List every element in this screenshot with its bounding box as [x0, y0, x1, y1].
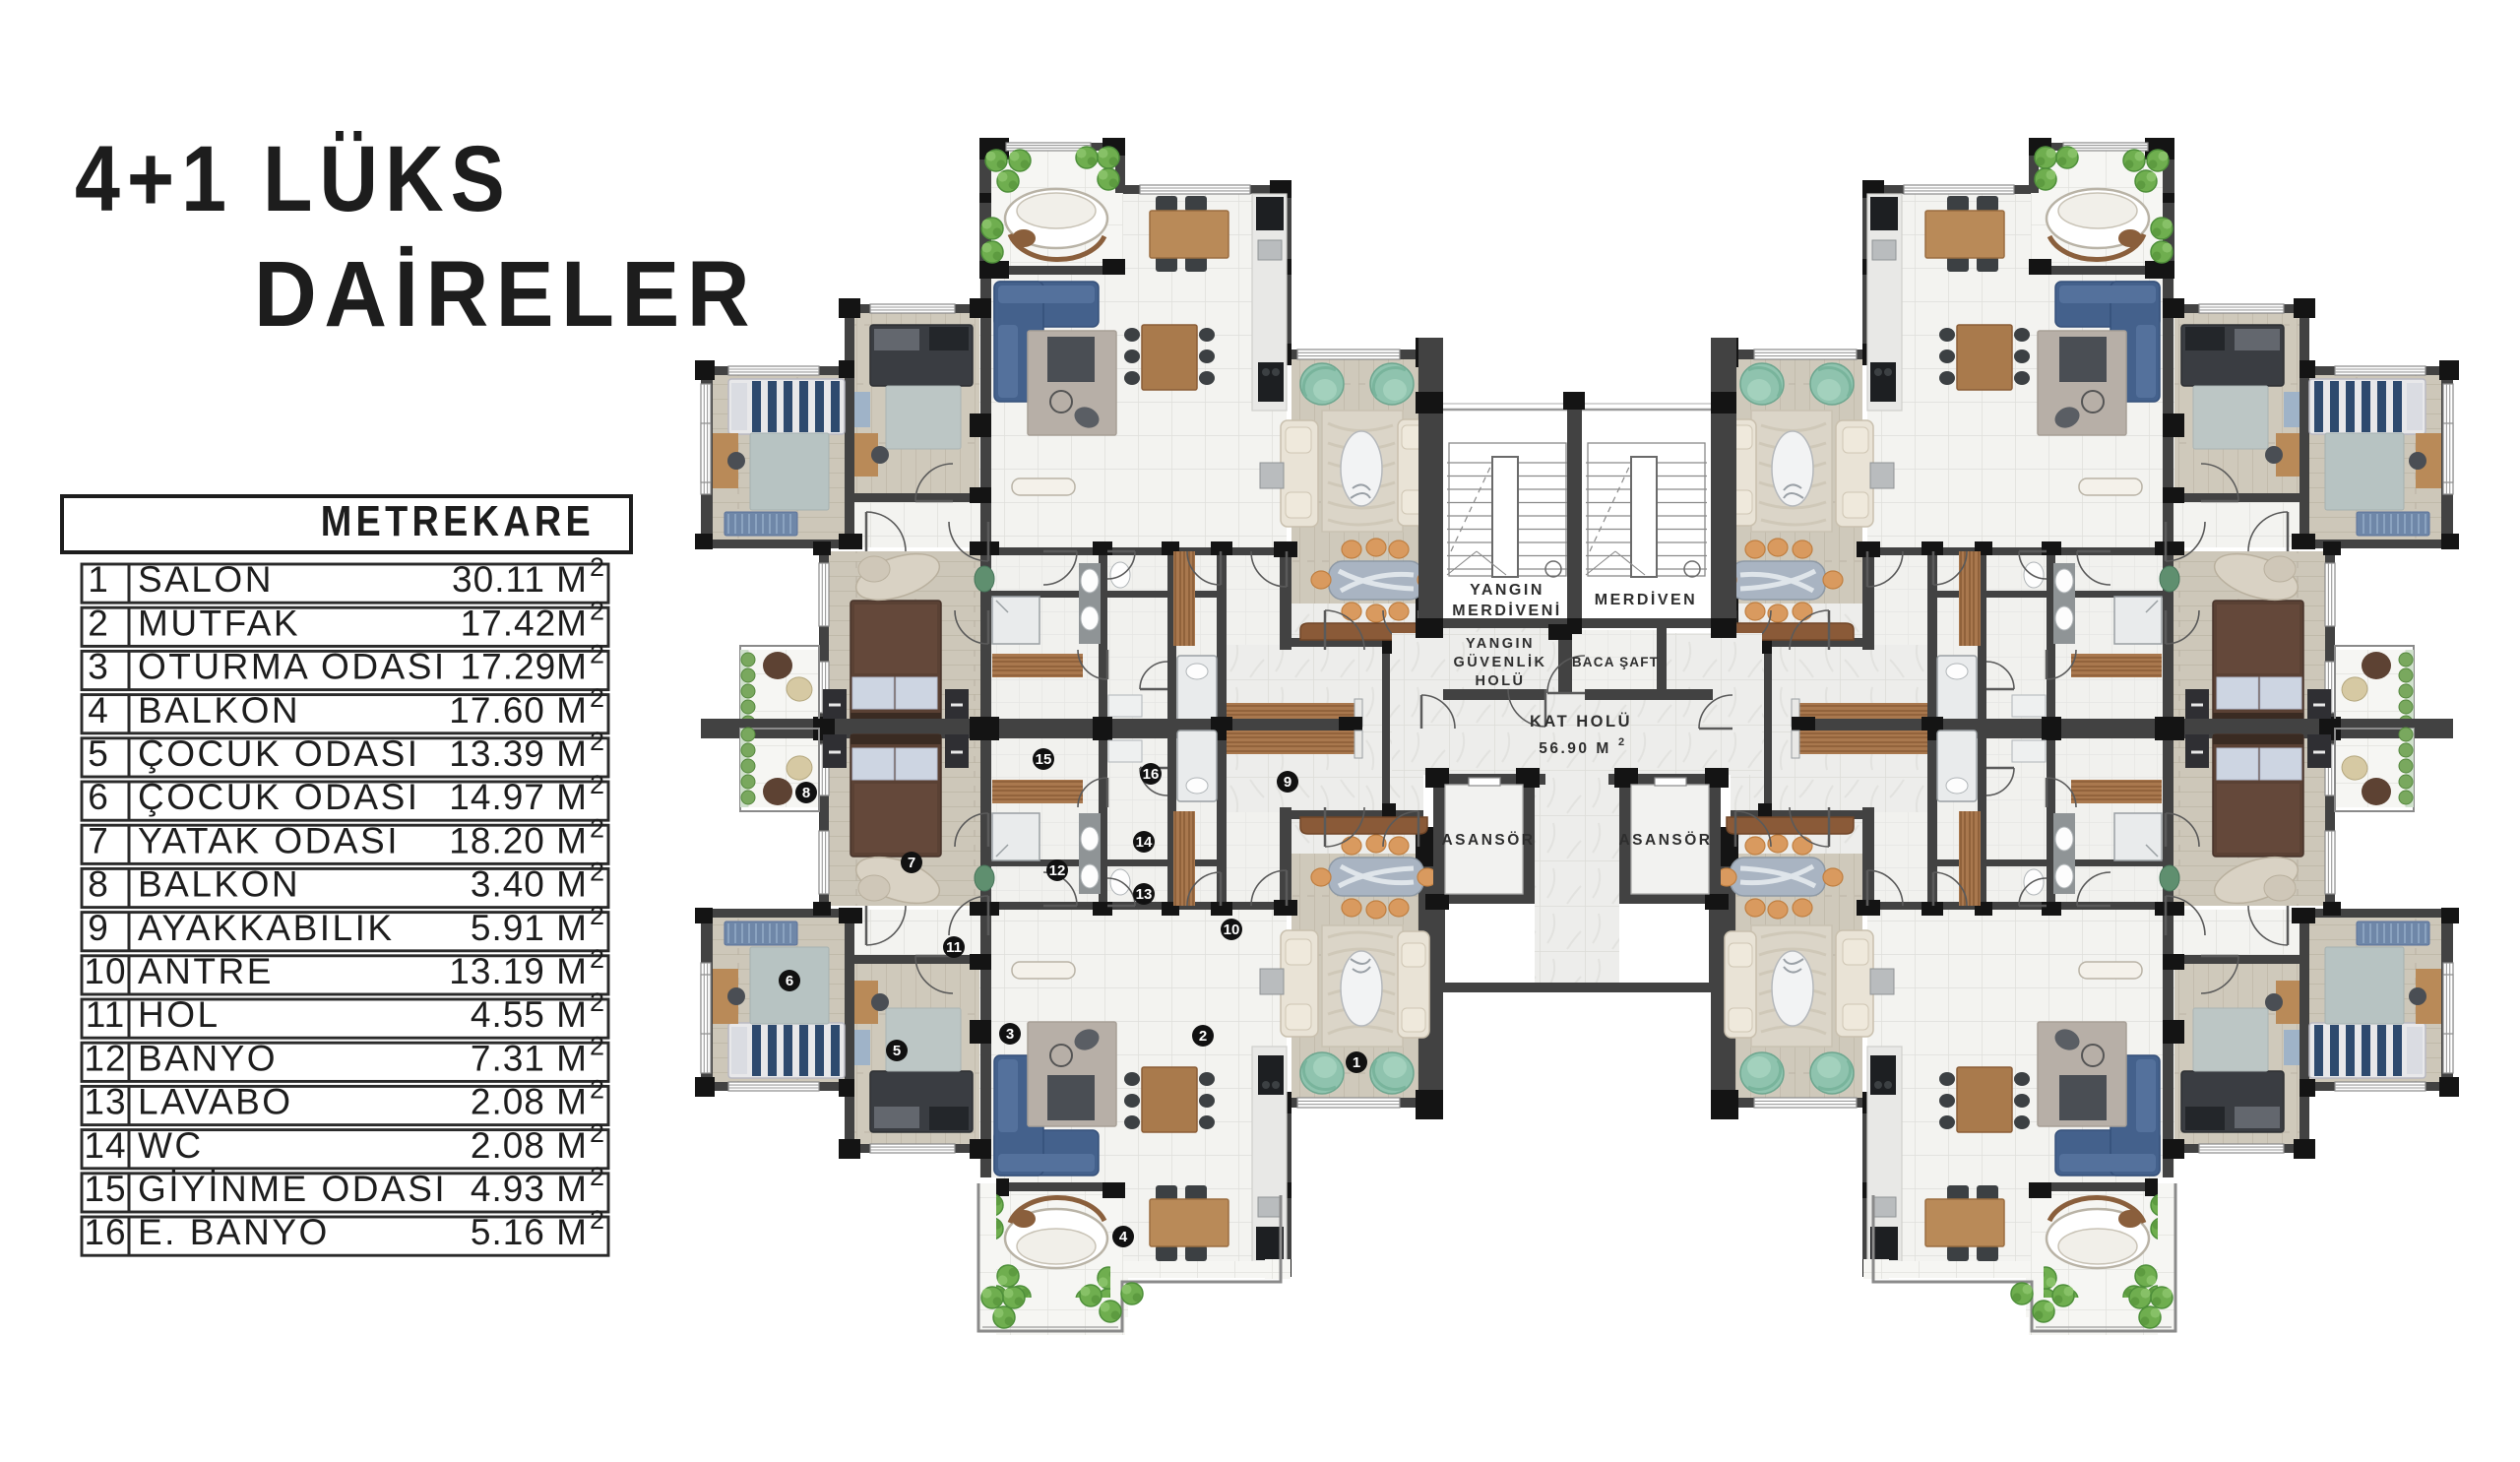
svg-text:LAVABO: LAVABO	[138, 1082, 293, 1122]
svg-text:2: 2	[590, 552, 604, 582]
svg-text:7: 7	[88, 820, 109, 860]
svg-text:6: 6	[88, 777, 109, 817]
svg-text:17.42M: 17.42M	[461, 603, 588, 643]
svg-text:30.11 M: 30.11 M	[452, 559, 588, 600]
svg-text:2: 2	[88, 603, 109, 643]
svg-text:BANYO: BANYO	[138, 1038, 278, 1078]
svg-text:2: 2	[590, 813, 604, 843]
svg-text:7: 7	[908, 855, 915, 871]
svg-text:11: 11	[86, 994, 125, 1035]
svg-text:4: 4	[1119, 1229, 1128, 1245]
svg-text:16: 16	[1143, 766, 1160, 783]
svg-text:OTURMA ODASI: OTURMA ODASI	[138, 647, 447, 687]
svg-text:2.08 M: 2.08 M	[471, 1082, 588, 1122]
svg-text:MUTFAK: MUTFAK	[138, 603, 300, 643]
svg-text:ASANSÖR: ASANSÖR	[1618, 832, 1712, 849]
svg-text:10: 10	[84, 951, 126, 991]
svg-text:8: 8	[88, 864, 109, 905]
svg-text:3: 3	[88, 647, 109, 687]
svg-text:YANGIN: YANGIN	[1470, 582, 1544, 599]
svg-text:2: 2	[1618, 736, 1624, 748]
svg-text:YATAK ODASI: YATAK ODASI	[138, 820, 400, 860]
svg-text:HOL: HOL	[138, 994, 220, 1035]
svg-text:4.93 M: 4.93 M	[471, 1169, 588, 1209]
svg-text:1: 1	[1353, 1054, 1360, 1071]
svg-text:2: 2	[590, 1162, 604, 1191]
svg-text:9: 9	[1284, 774, 1291, 791]
svg-text:14.97 M: 14.97 M	[449, 777, 588, 817]
svg-text:DAİRELER: DAİRELER	[254, 242, 757, 347]
svg-text:ÇOCUK ODASI: ÇOCUK ODASI	[138, 777, 420, 817]
svg-text:9: 9	[88, 908, 109, 948]
svg-text:2: 2	[590, 1118, 604, 1148]
svg-text:4.55 M: 4.55 M	[471, 994, 588, 1035]
svg-text:16: 16	[84, 1212, 126, 1252]
svg-text:4+1 LÜKS: 4+1 LÜKS	[75, 126, 512, 231]
svg-text:13: 13	[84, 1082, 126, 1122]
svg-text:13.19 M: 13.19 M	[449, 951, 588, 991]
svg-text:HOLÜ: HOLÜ	[1475, 672, 1525, 689]
svg-text:10: 10	[1224, 922, 1240, 938]
svg-text:2: 2	[590, 944, 604, 974]
svg-text:5: 5	[893, 1043, 901, 1059]
svg-text:17.29M: 17.29M	[461, 647, 588, 687]
svg-text:18.20 M: 18.20 M	[449, 820, 588, 860]
svg-text:ÇOCUK ODASI: ÇOCUK ODASI	[138, 733, 420, 774]
svg-text:2: 2	[590, 901, 604, 930]
svg-text:3.40 M: 3.40 M	[471, 864, 588, 905]
svg-text:14: 14	[1136, 834, 1153, 851]
svg-text:2: 2	[590, 858, 604, 887]
svg-text:4: 4	[88, 690, 109, 731]
svg-text:2: 2	[590, 683, 604, 713]
svg-text:17.60 M: 17.60 M	[449, 690, 588, 731]
svg-text:5: 5	[88, 733, 109, 774]
svg-text:YANGIN: YANGIN	[1466, 636, 1535, 652]
svg-text:6: 6	[786, 973, 793, 989]
svg-text:1: 1	[88, 559, 109, 600]
svg-text:3: 3	[1006, 1026, 1014, 1043]
svg-text:2: 2	[590, 1205, 604, 1235]
svg-text:2: 2	[590, 987, 604, 1017]
svg-text:GİYİNME ODASI: GİYİNME ODASI	[138, 1169, 447, 1209]
svg-text:12: 12	[84, 1038, 126, 1078]
svg-text:12: 12	[1049, 862, 1066, 879]
svg-text:GÜVENLİK: GÜVENLİK	[1454, 654, 1547, 670]
svg-text:2: 2	[590, 727, 604, 756]
svg-text:56.90 M: 56.90 M	[1539, 740, 1611, 757]
svg-text:ASANSÖR: ASANSÖR	[1441, 832, 1535, 849]
svg-text:11: 11	[946, 939, 962, 956]
svg-text:5.91 M: 5.91 M	[471, 908, 588, 948]
svg-text:2: 2	[1199, 1028, 1207, 1045]
svg-text:METREKARE: METREKARE	[321, 496, 595, 544]
svg-text:BALKON: BALKON	[138, 864, 300, 905]
svg-text:SALON: SALON	[138, 559, 274, 600]
svg-text:2: 2	[590, 1075, 604, 1105]
svg-text:WC: WC	[138, 1125, 204, 1166]
svg-text:2: 2	[590, 640, 604, 669]
svg-text:15: 15	[84, 1169, 126, 1209]
svg-text:5.16 M: 5.16 M	[471, 1212, 588, 1252]
svg-text:E. BANYO: E. BANYO	[138, 1212, 330, 1252]
svg-text:MERDİVEN: MERDİVEN	[1595, 591, 1697, 608]
svg-text:BALKON: BALKON	[138, 690, 300, 731]
svg-text:2.08 M: 2.08 M	[471, 1125, 588, 1166]
svg-text:AYAKKABILIK: AYAKKABILIK	[138, 908, 395, 948]
svg-text:2: 2	[590, 596, 604, 625]
svg-text:8: 8	[802, 785, 810, 801]
svg-text:2: 2	[590, 1031, 604, 1060]
svg-text:BACA ŞAFT: BACA ŞAFT	[1572, 655, 1659, 669]
svg-text:15: 15	[1036, 751, 1052, 768]
svg-text:ANTRE: ANTRE	[138, 951, 274, 991]
svg-text:14: 14	[84, 1125, 126, 1166]
svg-text:13.39 M: 13.39 M	[449, 733, 588, 774]
svg-text:13: 13	[1136, 886, 1153, 903]
svg-text:MERDİVENİ: MERDİVENİ	[1452, 602, 1561, 619]
svg-text:KAT HOLÜ: KAT HOLÜ	[1530, 712, 1632, 731]
svg-text:7.31 M: 7.31 M	[471, 1038, 588, 1078]
svg-text:2: 2	[590, 770, 604, 799]
